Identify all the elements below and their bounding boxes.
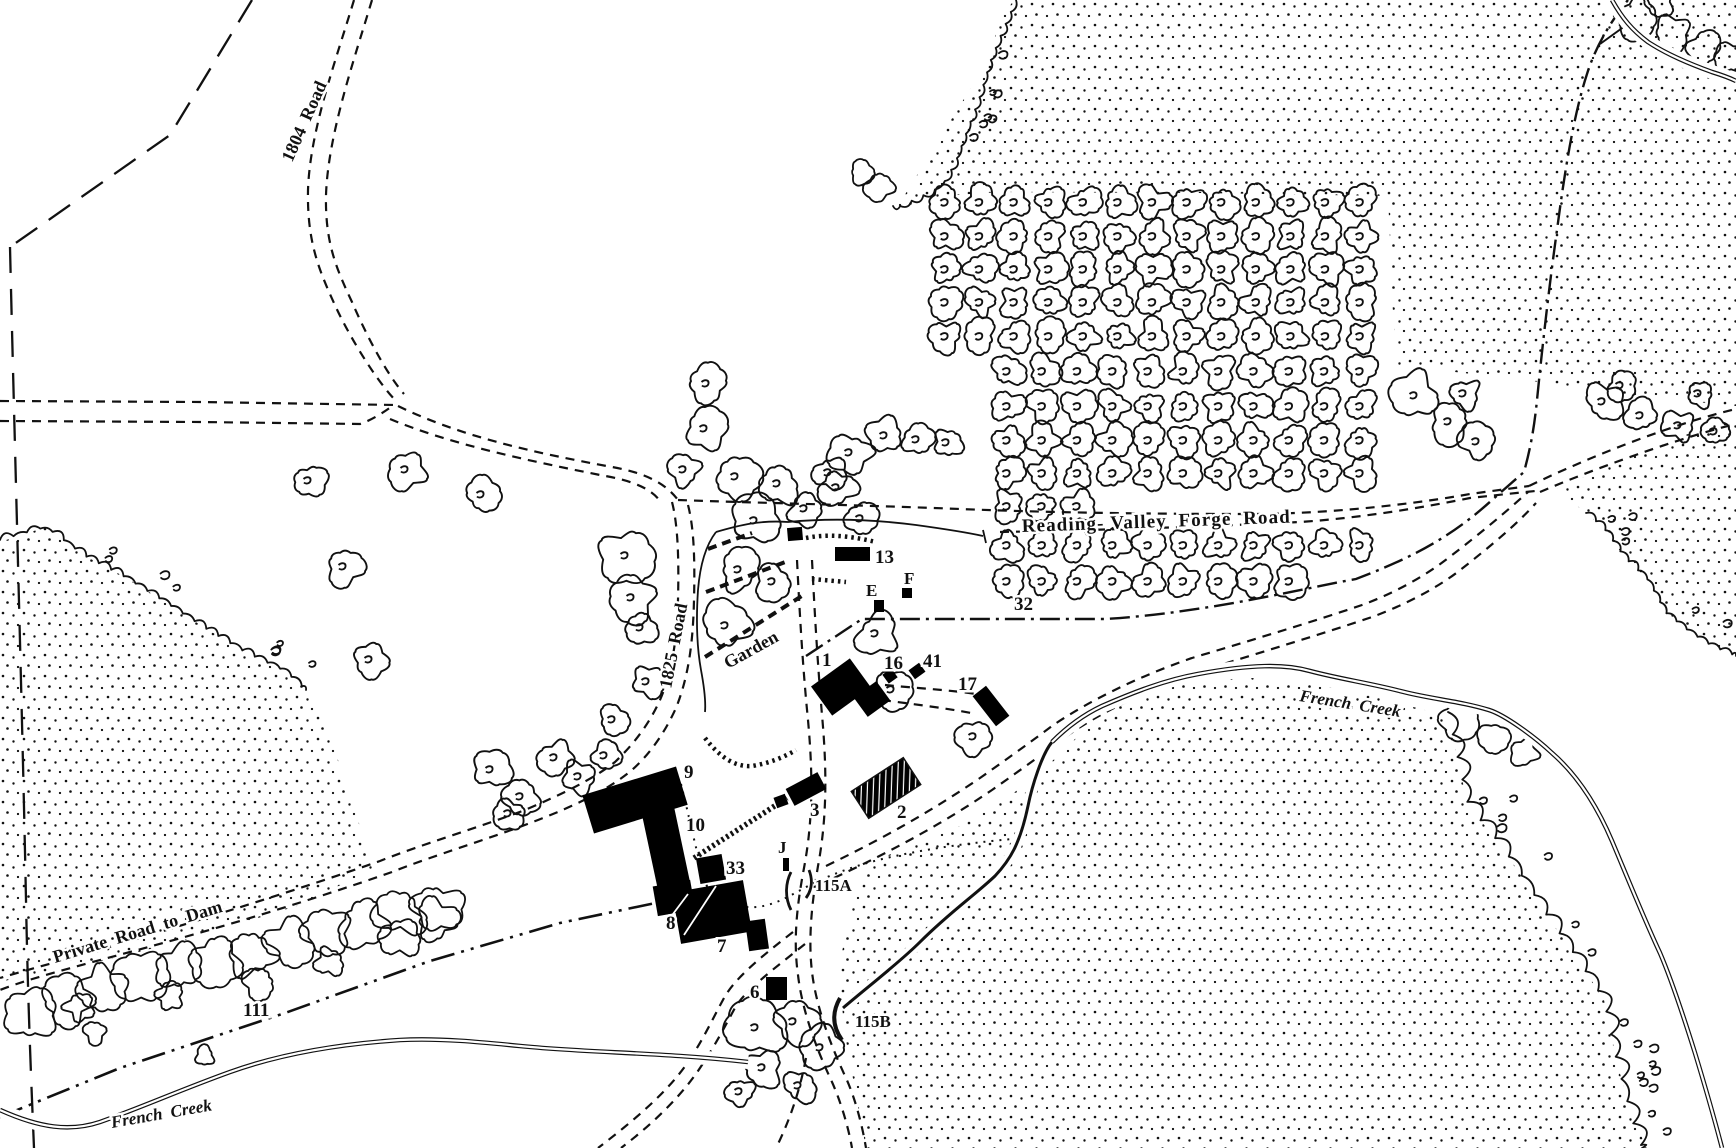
svg-text:6: 6 — [750, 982, 760, 1003]
svg-text:115A: 115A — [815, 876, 853, 895]
svg-text:17: 17 — [958, 674, 978, 695]
svg-text:7: 7 — [717, 936, 727, 957]
svg-text:115B: 115B — [855, 1012, 891, 1031]
svg-text:Garden: Garden — [720, 626, 781, 672]
svg-text:111: 111 — [243, 1000, 269, 1021]
svg-text:13: 13 — [875, 547, 894, 568]
svg-text:16: 16 — [884, 653, 903, 674]
svg-text:1804 Road: 1804 Road — [277, 78, 330, 165]
svg-text:3: 3 — [810, 800, 820, 821]
svg-text:F: F — [904, 569, 914, 588]
svg-text:1825 Road: 1825 Road — [655, 602, 691, 690]
svg-text:J: J — [778, 838, 787, 857]
svg-text:33: 33 — [726, 858, 745, 879]
svg-text:41: 41 — [923, 651, 942, 672]
svg-text:E: E — [866, 581, 877, 600]
svg-text:9: 9 — [684, 762, 694, 783]
svg-text:32: 32 — [1014, 594, 1033, 615]
svg-text:2: 2 — [897, 802, 907, 823]
svg-text:10: 10 — [686, 815, 705, 836]
svg-text:8: 8 — [666, 913, 676, 934]
svg-text:1: 1 — [822, 650, 832, 671]
